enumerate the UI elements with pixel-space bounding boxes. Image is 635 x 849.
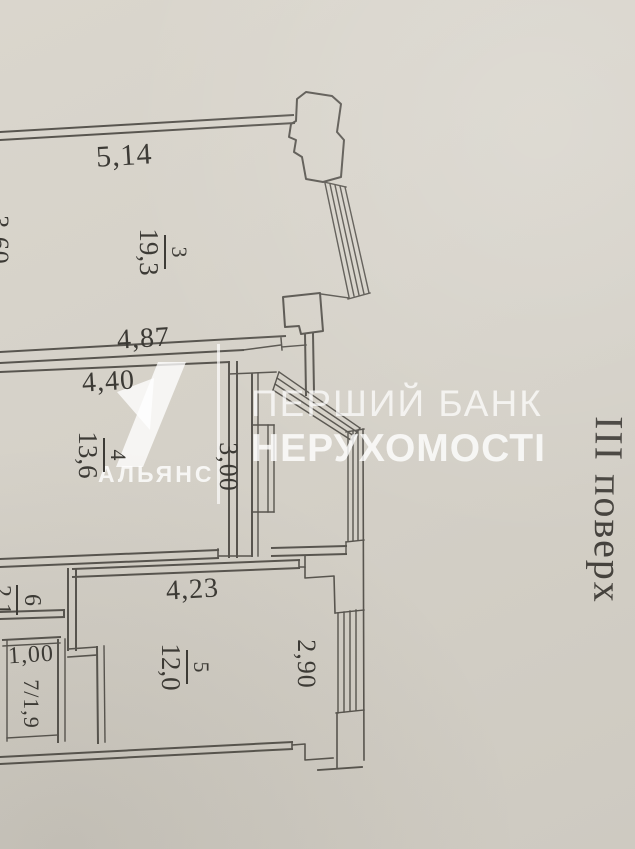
dim-room4-top: 4,40 — [81, 366, 136, 397]
room4-fraction-bar — [104, 438, 106, 472]
watermark-bank-line1: ПЕРШИЙ БАНК — [251, 383, 543, 425]
dim-loggia-depth: 3,00 — [213, 442, 243, 492]
room6-fraction-bar — [16, 585, 18, 615]
room3-label: 3 19,3 — [131, 215, 195, 289]
room3-fraction-bar — [165, 235, 167, 269]
room4-number: 4 — [108, 450, 130, 461]
room6-area: 2,1 — [0, 585, 14, 615]
watermark-bank-line2: НЕРУХОМОСТІ — [251, 427, 546, 471]
room5-label: 5 12,0 — [156, 630, 214, 704]
room4-area: 13,6 — [75, 431, 102, 478]
room7-label: 7/1,9 — [18, 679, 44, 729]
room5-fraction-bar — [187, 650, 189, 684]
dim-room5-right: 2,90 — [291, 639, 321, 689]
room6-number: 6 — [20, 594, 44, 606]
room3-area: 19,3 — [136, 228, 163, 275]
room3-number: 3 — [169, 247, 191, 258]
dim-room3-left: 3,60 — [0, 215, 14, 265]
room6-label: 6 2,1 — [0, 564, 45, 636]
room4-label: 4 13,6 — [73, 418, 131, 492]
dim-room3-bottom: 4,87 — [116, 323, 171, 354]
dim-room7-top: 1,00 — [7, 642, 54, 669]
room5-area: 12,0 — [158, 643, 185, 690]
floor-plan-photo: АЛЬЯНС ПЕРШИЙ БАНК НЕРУХОМОСТІ ІІІ повер… — [0, 0, 635, 849]
dim-room3-top: 5,14 — [95, 139, 153, 172]
floor-label: ІІІ поверх — [587, 360, 634, 660]
dim-room5-top: 4,23 — [165, 574, 220, 605]
room5-number: 5 — [191, 662, 213, 673]
